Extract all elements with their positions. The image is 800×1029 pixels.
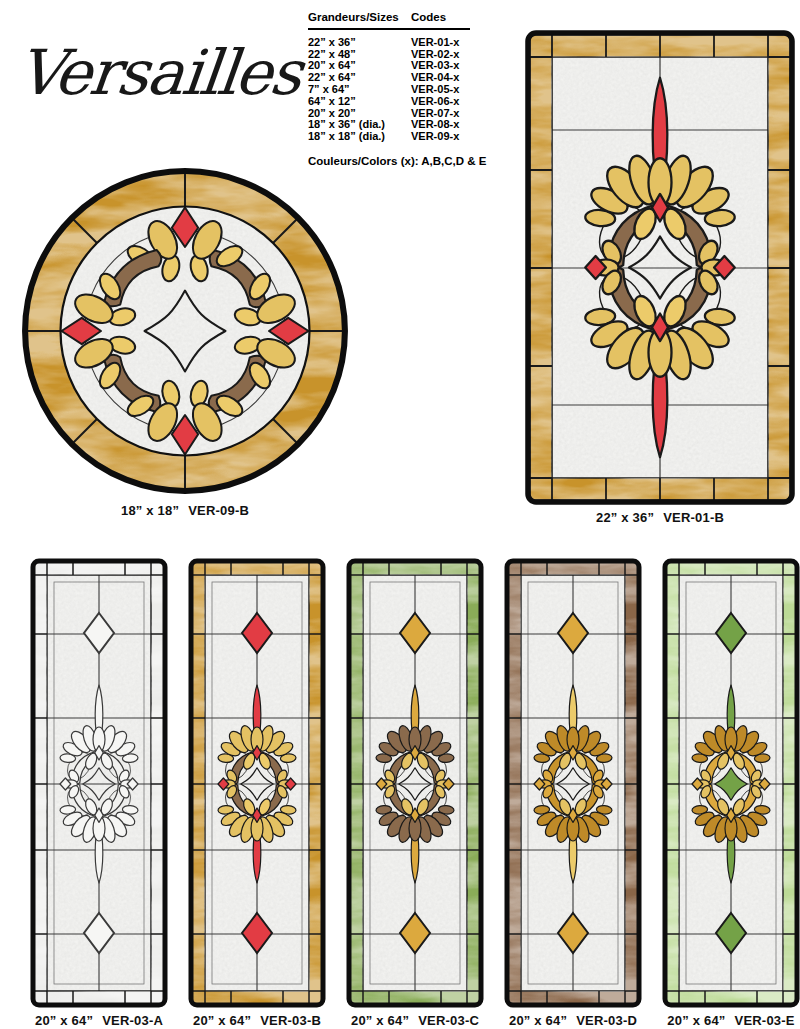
panel-b-graphic <box>188 558 326 1008</box>
caption-size: 20” x 64” <box>509 1013 567 1028</box>
catalog-page: Versailles Grandeurs/Sizes Codes 22” x 3… <box>0 0 800 1029</box>
table-row: 22” x 36”VER-01-x <box>308 37 486 49</box>
table-header-codes: Codes <box>411 12 446 24</box>
panel-e-graphic <box>662 558 800 1008</box>
panel-a-graphic <box>30 558 168 1008</box>
panel-c-graphic <box>346 558 484 1008</box>
code-cell: VER-01-x <box>411 37 459 49</box>
sizes-codes-table: Grandeurs/Sizes Codes 22” x 36”VER-01-x … <box>308 12 486 168</box>
window-round-ver-09-b: 18” x 18” VER-09-B <box>18 164 352 518</box>
window-panel-ver-03-e: 20” x 64” VER-03-E <box>662 558 800 1028</box>
window-panel-ver-03-b: 20” x 64” VER-03-B <box>188 558 326 1028</box>
size-cell: 18” x 18” (dia.) <box>308 131 411 143</box>
caption-size: 20” x 64” <box>667 1013 725 1028</box>
panel-d-caption: 20” x 64” VER-03-D <box>504 1013 642 1028</box>
size-cell: 22” x 36” <box>308 37 411 49</box>
round-window-caption: 18” x 18” VER-09-B <box>18 503 352 518</box>
window-panel-ver-03-c: 20” x 64” VER-03-C <box>346 558 484 1028</box>
caption-size: 20” x 64” <box>351 1013 409 1028</box>
caption-code: VER-03-D <box>576 1013 637 1028</box>
caption-code: VER-09-B <box>188 503 249 518</box>
page-title: Versailles <box>10 36 322 146</box>
table-header-row: Grandeurs/Sizes Codes <box>308 12 470 30</box>
window-panel-ver-03-d: 20” x 64” VER-03-D <box>504 558 642 1028</box>
window-panel-ver-03-a: 20” x 64” VER-03-A <box>30 558 168 1028</box>
round-window-graphic <box>18 164 352 498</box>
size-cell: 7” x 64” <box>308 84 411 96</box>
panel-e-caption: 20” x 64” VER-03-E <box>662 1013 800 1028</box>
panel-b-caption: 20” x 64” VER-03-B <box>188 1013 326 1028</box>
caption-size: 18” x 18” <box>121 503 179 518</box>
caption-size: 22” x 36” <box>596 510 654 525</box>
code-cell: VER-06-x <box>411 96 459 108</box>
caption-code: VER-03-A <box>102 1013 163 1028</box>
table-row: 64” x 12”VER-06-x <box>308 96 486 108</box>
code-cell: VER-09-x <box>411 131 459 143</box>
caption-code: VER-03-E <box>735 1013 795 1028</box>
large-window-caption: 22” x 36” VER-01-B <box>525 510 795 525</box>
table-header-sizes: Grandeurs/Sizes <box>308 12 411 24</box>
table-row: 7” x 64”VER-05-x <box>308 84 486 96</box>
caption-code: VER-03-B <box>260 1013 321 1028</box>
caption-size: 20” x 64” <box>35 1013 93 1028</box>
window-large-ver-01-b: 22” x 36” VER-01-B <box>525 30 795 525</box>
panel-d-graphic <box>504 558 642 1008</box>
code-cell: VER-05-x <box>411 84 459 96</box>
caption-code: VER-01-B <box>663 510 724 525</box>
caption-size: 20” x 64” <box>193 1013 251 1028</box>
caption-code: VER-03-C <box>418 1013 479 1028</box>
table-row: 18” x 18” (dia.)VER-09-x <box>308 131 486 143</box>
panel-c-caption: 20” x 64” VER-03-C <box>346 1013 484 1028</box>
panel-a-caption: 20” x 64” VER-03-A <box>30 1013 168 1028</box>
size-cell: 64” x 12” <box>308 96 411 108</box>
large-window-graphic <box>525 30 795 505</box>
